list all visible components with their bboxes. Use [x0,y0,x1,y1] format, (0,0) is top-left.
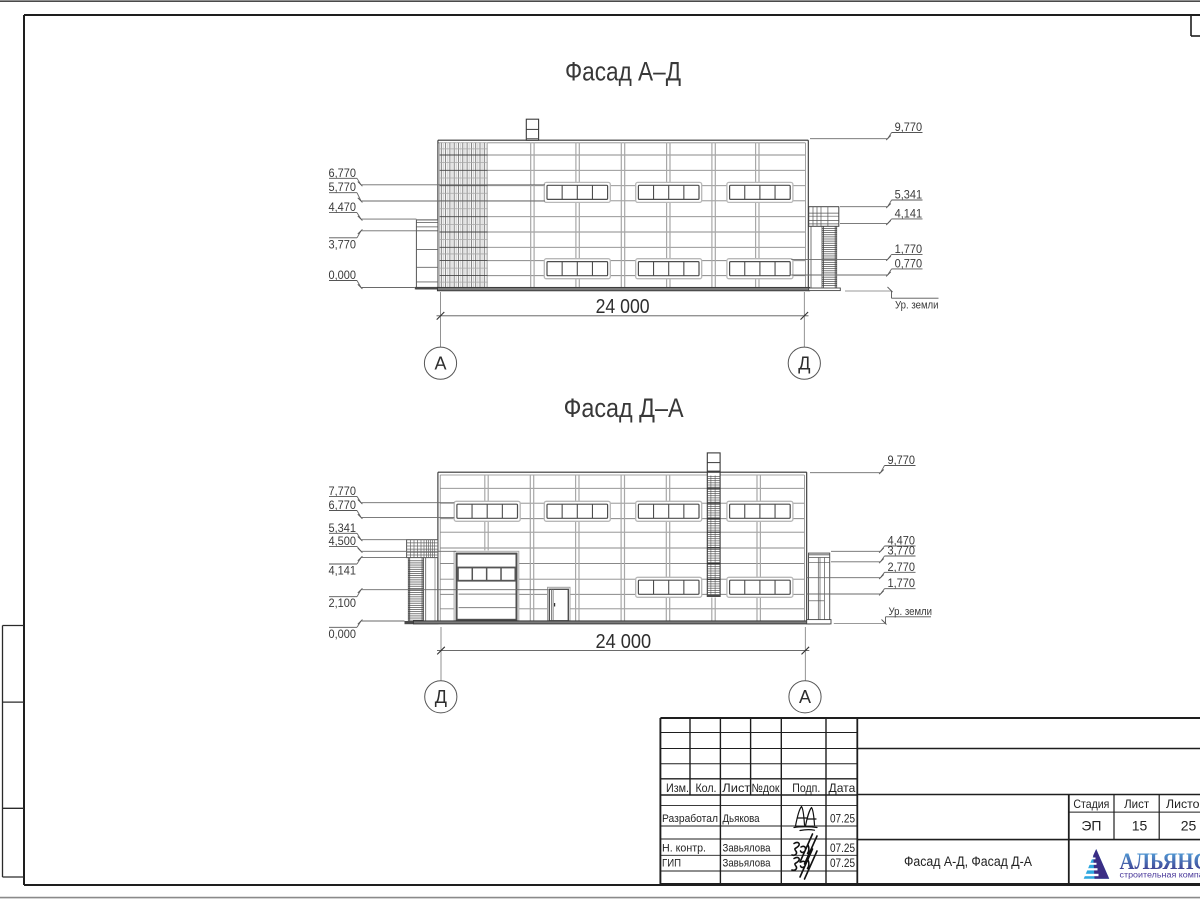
svg-text:Подп.: Подп. [792,781,820,795]
svg-text:24 000: 24 000 [596,296,650,318]
svg-text:Листов: Листов [1166,797,1200,811]
svg-text:Ур. земли: Ур. земли [895,299,939,311]
svg-text:9,770: 9,770 [895,120,923,134]
svg-text:4,141: 4,141 [329,564,357,578]
svg-text:А: А [799,687,811,707]
svg-text:Дата: Дата [829,781,856,795]
svg-text:ГИП: ГИП [662,858,681,870]
svg-text:1,770: 1,770 [888,576,916,590]
svg-text:№док: №док [752,781,781,795]
svg-text:1,770: 1,770 [895,242,923,256]
svg-text:Лист: Лист [722,781,751,795]
svg-text:4,470: 4,470 [329,200,357,214]
svg-text:6,770: 6,770 [329,166,357,180]
svg-text:А: А [434,353,446,373]
svg-text:07.25: 07.25 [830,841,855,855]
svg-text:7,770: 7,770 [329,484,357,498]
svg-text:15: 15 [1132,818,1148,834]
svg-text:Фасад А-Д, Фасад Д-А: Фасад А-Д, Фасад Д-А [904,854,1032,869]
svg-text:07.25: 07.25 [830,812,855,826]
svg-text:Дьякова: Дьякова [723,813,761,825]
svg-text:5,341: 5,341 [329,521,357,535]
svg-text:Н. контр.: Н. контр. [662,843,706,855]
svg-text:25: 25 [1181,818,1197,834]
svg-text:Изм.: Изм. [666,781,689,795]
svg-text:Ур. земли: Ур. земли [889,606,933,618]
svg-text:Фасад Д–А: Фасад Д–А [564,393,684,423]
svg-text:2,100: 2,100 [329,596,357,610]
svg-text:9,770: 9,770 [888,453,916,467]
svg-text:строительная компания: строительная компания [1120,871,1200,880]
svg-text:2,770: 2,770 [888,560,916,574]
svg-text:Лист: Лист [1124,797,1149,811]
svg-text:4,500: 4,500 [329,534,357,548]
svg-text:Стадия: Стадия [1073,797,1109,811]
svg-text:Кол.: Кол. [696,781,717,795]
svg-text:4,141: 4,141 [895,206,923,220]
svg-text:07.25: 07.25 [830,856,855,870]
svg-text:3,770: 3,770 [329,237,357,251]
svg-text:ЭП: ЭП [1081,818,1101,834]
svg-text:24 000: 24 000 [596,631,652,653]
svg-text:Д: Д [435,687,447,707]
svg-text:0,000: 0,000 [329,627,357,641]
svg-text:Фасад А–Д: Фасад А–Д [565,57,681,87]
svg-text:Д: Д [798,353,810,373]
svg-text:6,770: 6,770 [329,498,357,512]
svg-text:Разработал: Разработал [662,813,718,825]
svg-text:5,341: 5,341 [895,188,923,202]
svg-text:Завьялова: Завьялова [723,858,772,870]
svg-text:3,770: 3,770 [888,544,916,558]
svg-text:5,770: 5,770 [329,180,357,194]
svg-text:0,770: 0,770 [895,256,923,270]
svg-text:0,000: 0,000 [329,268,357,282]
svg-text:Завьялова: Завьялова [723,843,772,855]
